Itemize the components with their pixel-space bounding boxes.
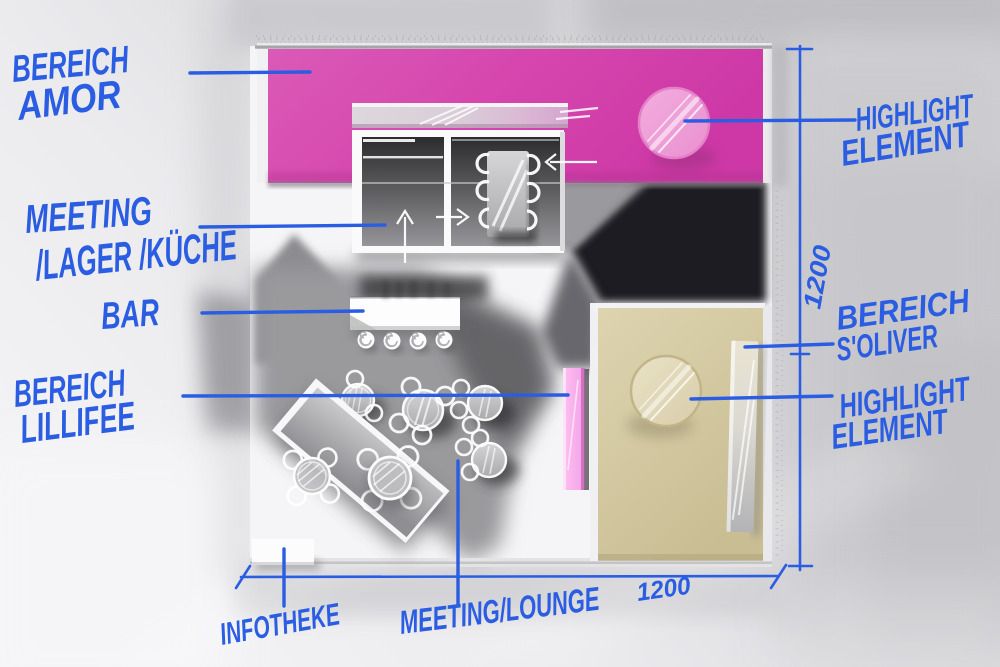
svg-text:BAR: BAR xyxy=(100,292,161,338)
